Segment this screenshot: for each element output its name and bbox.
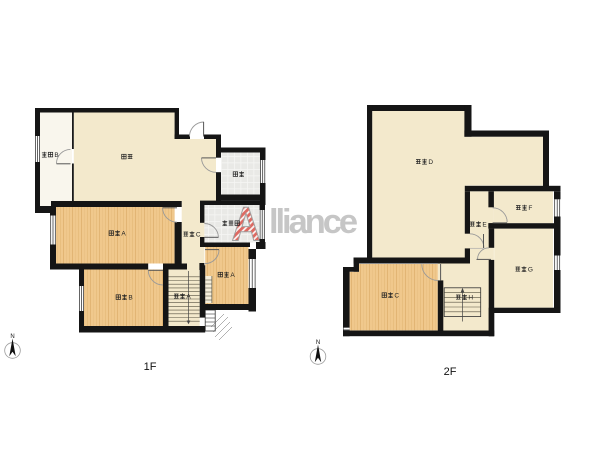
svg-text:F: F xyxy=(528,205,532,212)
svg-text:H: H xyxy=(468,295,473,302)
svg-text:lliance: lliance xyxy=(269,203,358,241)
svg-text:G: G xyxy=(528,267,533,274)
svg-text:A: A xyxy=(121,231,126,238)
svg-text:N: N xyxy=(316,340,320,346)
svg-text:A: A xyxy=(186,294,191,301)
svg-text:E: E xyxy=(482,222,487,229)
svg-text:B: B xyxy=(54,152,58,159)
svg-text:N: N xyxy=(10,334,14,340)
svg-text:C: C xyxy=(196,232,201,239)
svg-text:A: A xyxy=(230,272,235,279)
svg-text:B: B xyxy=(128,295,132,302)
svg-text:C: C xyxy=(394,293,399,300)
svg-text:1F: 1F xyxy=(144,361,157,373)
svg-text:D: D xyxy=(428,159,433,166)
svg-text:2F: 2F xyxy=(444,366,457,378)
